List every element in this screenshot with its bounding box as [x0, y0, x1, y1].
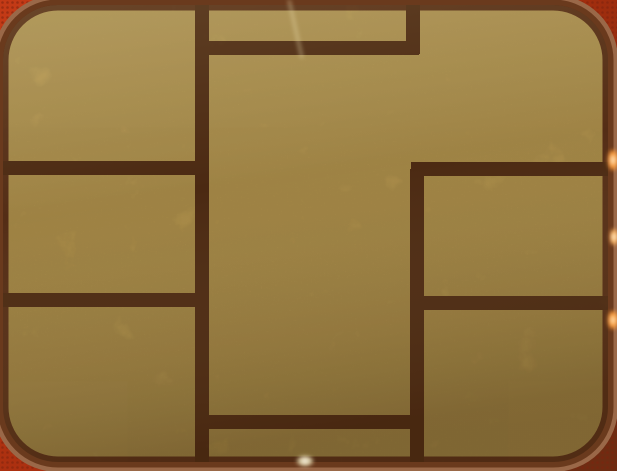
right-edge-glint-middle-core — [612, 233, 616, 241]
right-edge-glint-lower-core — [611, 316, 616, 325]
bottom-edge-glint-core — [301, 459, 308, 464]
right-edge-glint-upper-core — [611, 155, 616, 165]
photo-canvas — [0, 0, 617, 471]
smart-card-chip — [0, 0, 617, 471]
surface-shading — [3, 5, 608, 462]
